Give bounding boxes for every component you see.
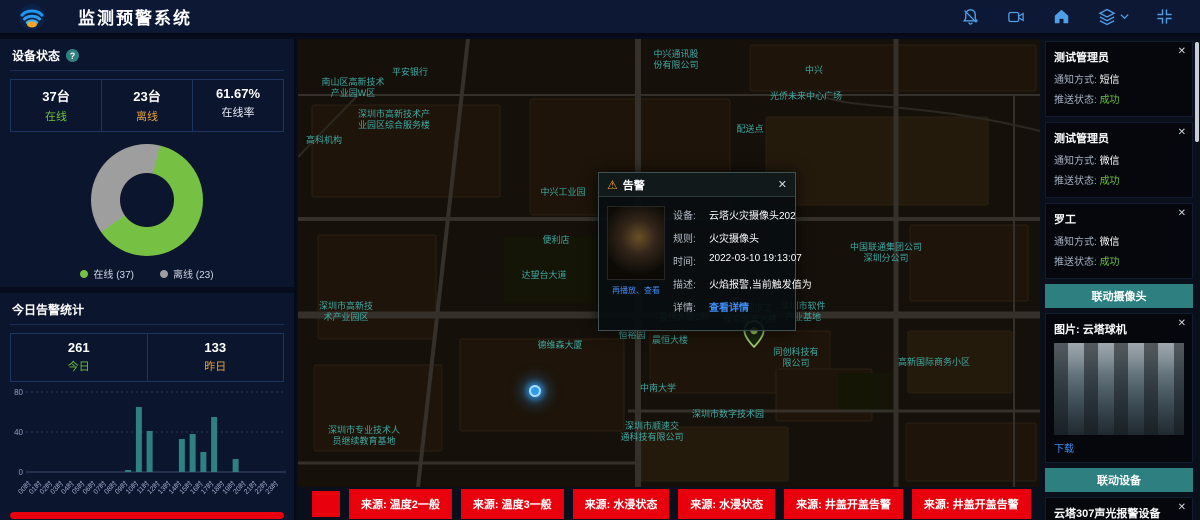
close-icon[interactable] (1178, 127, 1186, 138)
sonar-logo-icon (18, 3, 46, 31)
download-link[interactable]: 下载 (1054, 440, 1074, 455)
device-status-section: 设备状态 37台 在线 23台 离线 61.67% 在线率 (0, 39, 294, 281)
today-alarm-section: 今日告警统计 261 今日 133 昨日 0408000时01时02时03时04… (0, 293, 294, 520)
ticker-alert-item[interactable]: 来源: 井盖开盖告警 (912, 489, 1031, 519)
close-icon[interactable] (778, 178, 787, 191)
hourly-alarm-bar-chart: 0408000时01时02时03时04时05时06时07时08时09时10时11… (10, 384, 286, 510)
close-icon[interactable] (1178, 208, 1186, 219)
svg-text:80: 80 (14, 388, 23, 397)
alert-ticker: 来源: 温度2一般来源: 温度3一般来源: 水浸状态来源: 水浸状态来源: 井盖… (298, 487, 1040, 520)
notify-card: 测试管理员 通知方式: 短信 推送状态: 成功 (1045, 41, 1193, 117)
bar (147, 431, 153, 472)
layers-icon[interactable] (1097, 7, 1129, 27)
legend-offline: 离线 (23) (160, 266, 214, 281)
stat-today: 261 今日 (11, 334, 148, 381)
alarm-row-detail: 详情: 查看详情 (673, 299, 812, 314)
view-detail-link[interactable]: 查看详情 (709, 299, 749, 314)
home-icon[interactable] (1052, 7, 1071, 26)
close-icon[interactable] (1178, 318, 1186, 329)
svg-text:40: 40 (14, 428, 23, 437)
pulse-dot-marker[interactable] (529, 385, 541, 397)
warning-icon (607, 179, 618, 191)
alarm-detail-rows: 设备: 云塔火灾摄像头202 规则: 火灾摄像头 时间: 2022-03-10 … (673, 206, 812, 322)
exit-fullscreen-icon[interactable] (1155, 7, 1174, 26)
stat-online: 37台 在线 (11, 80, 102, 131)
today-alarm-title: 今日告警统计 (12, 301, 84, 318)
video-camera-icon[interactable] (1006, 8, 1026, 26)
page-title: 监测预警系统 (78, 4, 192, 29)
alarm-snapshot-image[interactable] (607, 206, 665, 280)
legend-online: 在线 (37) (80, 266, 134, 281)
city-map[interactable]: 中兴通讯股 份有限公司中兴平安银行南山区高新技术 产业园W区深圳市高新技术产 业… (298, 39, 1040, 487)
ticker-alert-item[interactable] (312, 491, 340, 517)
donut-legend: 在线 (37) 离线 (23) (10, 266, 284, 281)
alarm-row-device: 设备: 云塔火灾摄像头202 (673, 207, 812, 222)
ticker-alert-item[interactable]: 来源: 井盖开盖告警 (784, 489, 903, 519)
device-status-header: 设备状态 (10, 39, 284, 71)
left-stats-panel: 设备状态 37台 在线 23台 离线 61.67% 在线率 (0, 39, 296, 520)
close-icon[interactable] (1178, 46, 1186, 57)
top-bar: 监测预警系统 (0, 0, 1200, 36)
ticker-alert-item[interactable]: 来源: 水浸状态 (678, 489, 775, 519)
top-bar-actions (961, 7, 1174, 27)
monitoring-dashboard: 监测预警系统 (0, 0, 1200, 520)
device-status-stats: 37台 在线 23台 离线 61.67% 在线率 (10, 79, 284, 132)
bar (190, 434, 196, 472)
alarm-thumb-column: 再播放、查看 (607, 206, 665, 322)
alarm-popup-header: 告警 (599, 173, 795, 197)
linked-device-button[interactable]: 联动设备 (1045, 468, 1193, 492)
alarm-row-rule: 规则: 火灾摄像头 (673, 230, 812, 245)
question-icon[interactable] (66, 49, 79, 62)
green-dot-icon (80, 270, 88, 278)
device-status-title: 设备状态 (12, 47, 60, 64)
camera-photo-card: 图片: 云塔球机 下载 (1045, 313, 1193, 463)
scrollbar-thumb[interactable] (1195, 42, 1199, 142)
bar (179, 439, 185, 472)
camera-snapshot-image[interactable] (1054, 343, 1184, 435)
bar (211, 417, 217, 472)
close-icon[interactable] (1178, 502, 1186, 513)
linked-device-card: 云塔307声光报警设备 设备编码: ffffff100001ab6c 调用服务:… (1045, 497, 1193, 520)
alarm-thumb-links[interactable]: 再播放、查看 (607, 285, 665, 296)
stat-online-rate: 61.67% 在线率 (193, 80, 283, 131)
stat-yesterday: 133 昨日 (148, 334, 284, 381)
linked-camera-button[interactable]: 联动摄像头 (1045, 284, 1193, 308)
bar (233, 459, 239, 472)
svg-text:0: 0 (19, 468, 24, 477)
unhandled-progress-bar (10, 512, 284, 519)
bar (200, 452, 206, 472)
notify-card: 罗工 通知方式: 微信 推送状态: 成功 (1045, 203, 1193, 279)
today-alarm-header: 今日告警统计 (10, 293, 284, 325)
right-notification-panel: 测试管理员 通知方式: 短信 推送状态: 成功 测试管理员 通知方式: 微信 推… (1040, 39, 1200, 520)
alarm-popup-title: 告警 (623, 177, 645, 193)
chevron-down-icon (1120, 13, 1129, 20)
ticker-alert-item[interactable]: 来源: 水浸状态 (573, 489, 670, 519)
alarm-popup: 告警 再播放、查看 设备: 云塔火灾摄像头202 规则: 火灾摄像头 (598, 172, 796, 331)
alarm-row-time: 时间: 2022-03-10 19:13:07 (673, 253, 812, 268)
bar (125, 470, 131, 472)
gray-dot-icon (160, 270, 168, 278)
notify-card: 测试管理员 通知方式: 微信 推送状态: 成功 (1045, 122, 1193, 198)
stat-offline: 23台 离线 (102, 80, 193, 131)
device-donut-chart (91, 144, 203, 256)
notification-muted-icon[interactable] (961, 7, 980, 26)
alarm-row-description: 描述: 火焰报警,当前触发值为 (673, 276, 812, 291)
alarm-popup-body: 再播放、查看 设备: 云塔火灾摄像头202 规则: 火灾摄像头 时间: 2022… (599, 197, 795, 330)
ticker-alert-item[interactable]: 来源: 温度2一般 (349, 489, 452, 519)
today-alarm-stats: 261 今日 133 昨日 (10, 333, 284, 382)
bar (136, 407, 142, 472)
ticker-alert-item[interactable]: 来源: 温度3一般 (461, 489, 564, 519)
